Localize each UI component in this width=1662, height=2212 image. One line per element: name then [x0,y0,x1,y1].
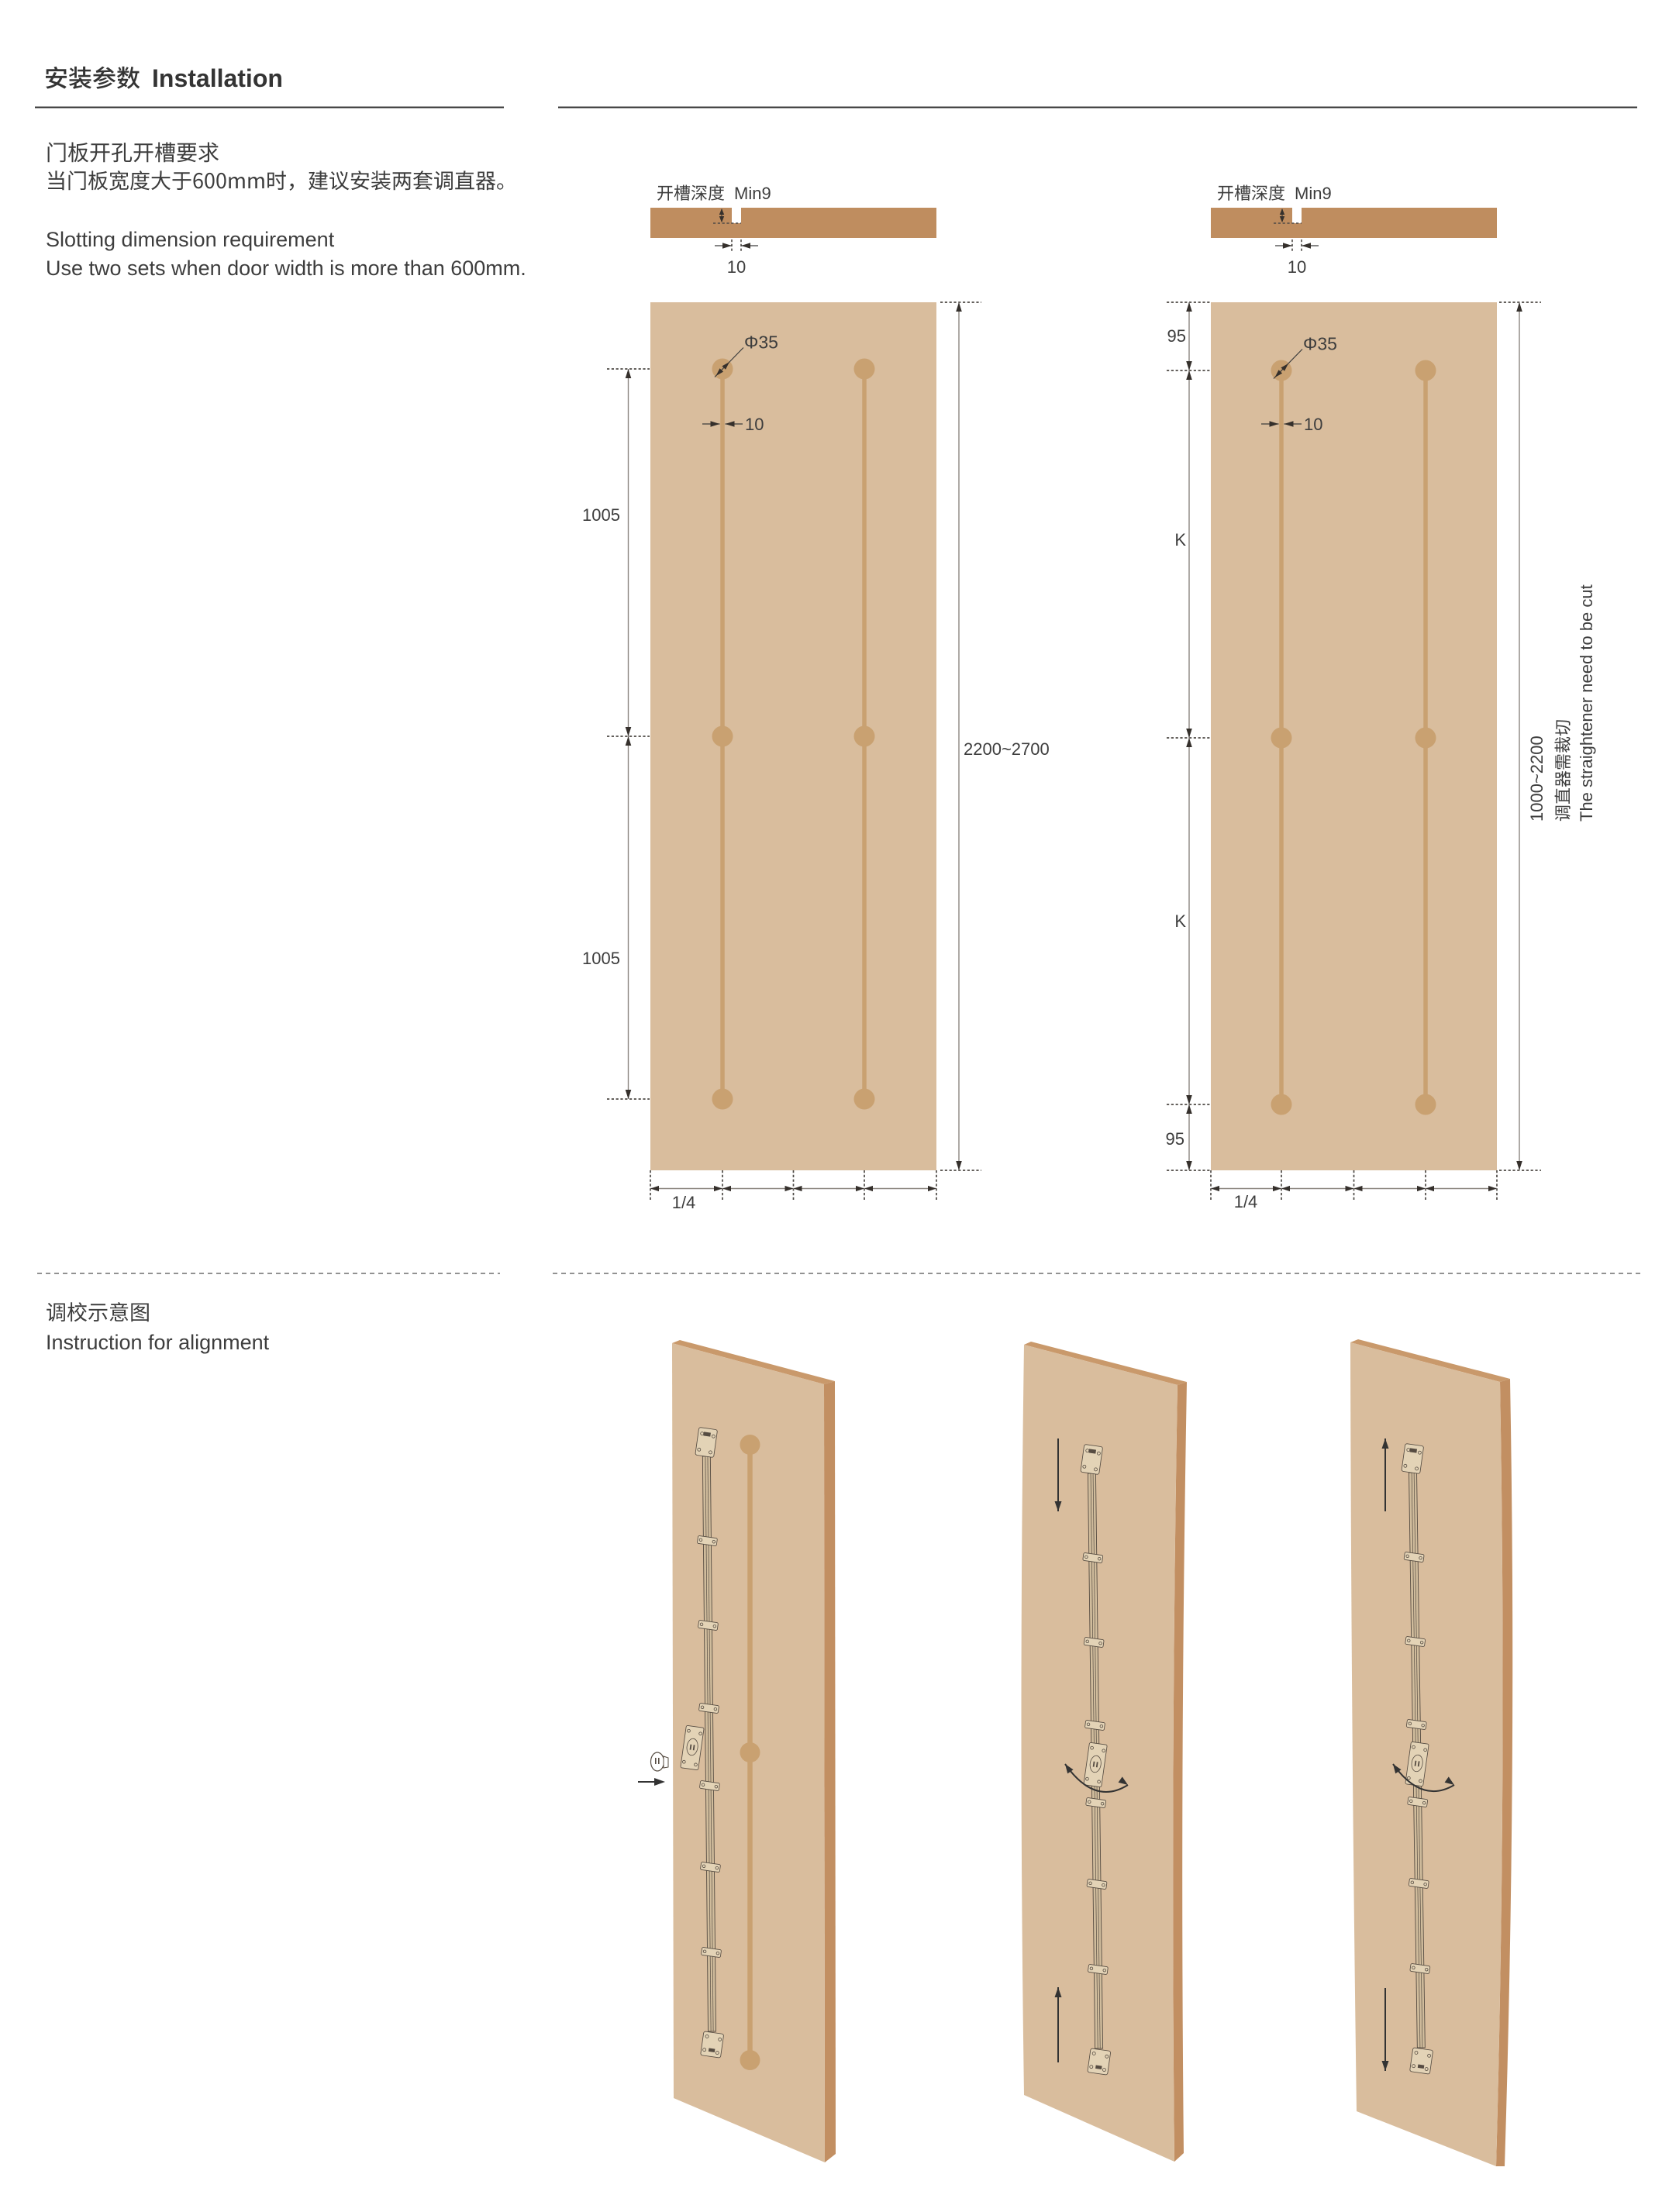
svg-text:1005: 1005 [582,505,620,525]
svg-text:K: K [1174,911,1186,931]
svg-text:Slotting dimension requirement: Slotting dimension requirement [46,228,335,251]
svg-text:Φ35: Φ35 [1303,334,1337,354]
svg-text:10: 10 [745,415,764,434]
svg-text:2200~2700: 2200~2700 [964,739,1050,759]
svg-text:K: K [1174,530,1186,550]
svg-text:10: 10 [727,257,746,277]
svg-text:Φ35: Φ35 [744,332,778,353]
svg-text:95: 95 [1166,1129,1184,1149]
svg-text:1/4: 1/4 [1234,1192,1258,1211]
svg-text:1005: 1005 [582,949,620,968]
svg-text:Use two sets when door width i: Use two sets when door width is more tha… [46,257,526,280]
svg-text:10: 10 [1304,415,1322,434]
svg-text:1/4: 1/4 [672,1193,696,1212]
svg-text:95: 95 [1167,326,1186,346]
svg-text:10: 10 [1288,257,1306,277]
svg-text:Min9: Min9 [1295,184,1332,203]
svg-text:Installation: Installation [152,64,283,92]
svg-text:Instruction for alignment: Instruction for alignment [46,1331,270,1354]
svg-text:1000~2200: 1000~2200 [1527,736,1546,822]
svg-text:Min9: Min9 [734,184,771,203]
svg-text:The straightener need to be cu: The straightener need to be cut [1577,584,1596,822]
